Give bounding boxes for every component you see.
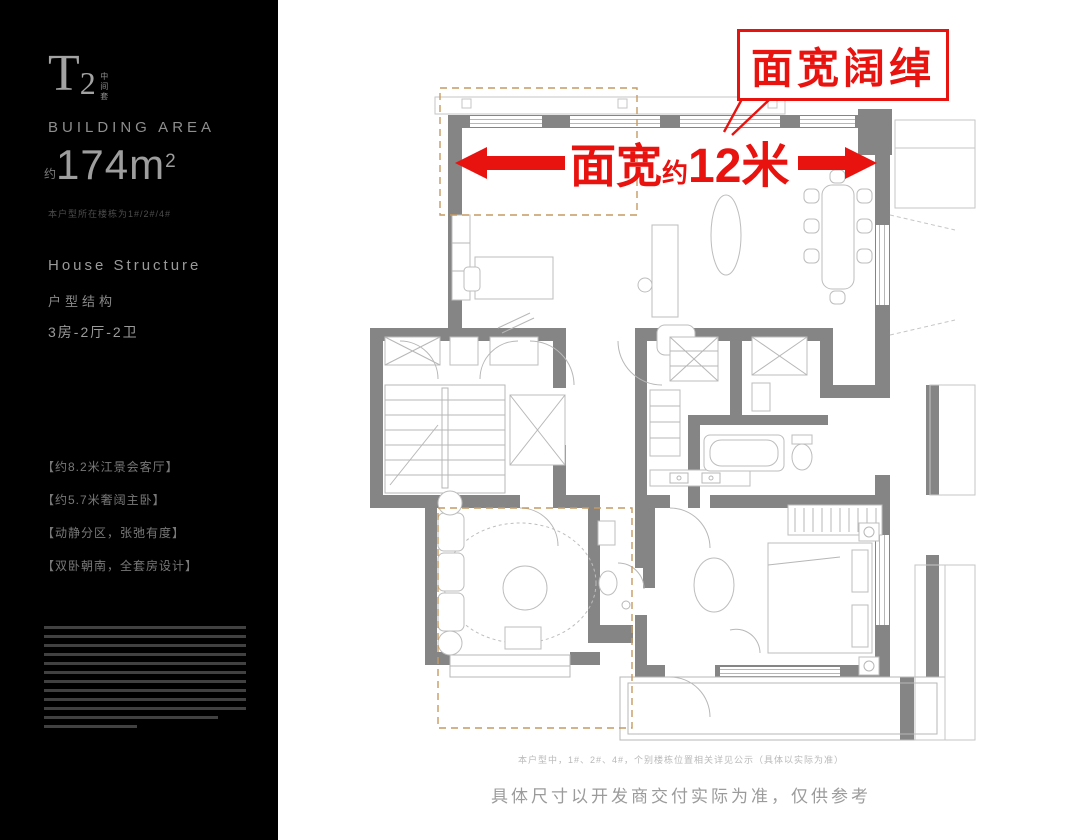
footer-note-small: 本户型中，1#、2#、4#，个别楼栋位置相关详见公示（具体以实际为准） (283, 753, 1079, 766)
footer-note-main: 具体尺寸以开发商交付实际为准，仅供参考 (283, 782, 1079, 807)
fine-print-line (44, 716, 218, 719)
feature-item: 【双卧朝南，全套房设计】 (42, 557, 198, 574)
laundry-room (752, 337, 807, 411)
fine-print-paragraph (44, 626, 246, 734)
unit-code-number: 2 (80, 68, 96, 98)
fine-print-line (44, 653, 246, 656)
fine-print-line (44, 662, 246, 665)
fine-print-line (44, 635, 246, 638)
elevator-core (385, 337, 565, 465)
fine-print-line (44, 707, 246, 710)
study-furniture (452, 215, 553, 333)
house-structure-cn: 户型结构 (48, 291, 116, 310)
unit-code-letter: T (48, 52, 80, 96)
master-bathroom (704, 435, 812, 471)
callout-bubble: 面宽阔绰 (737, 29, 949, 101)
fine-print-line (44, 644, 246, 647)
balcony (620, 677, 945, 740)
fine-print-line (44, 725, 137, 728)
feature-list: 【约8.2米江景会客厅】【约5.7米奢阔主卧】【动静分区，张弛有度】【双卧朝南，… (42, 458, 198, 590)
building-area-label: BUILDING AREA (48, 119, 215, 136)
stairs (385, 385, 505, 493)
building-area-value: 约 174m 2 (44, 141, 176, 189)
unit-tag: 中间套 (99, 72, 110, 102)
feature-item: 【动静分区，张弛有度】 (42, 524, 198, 541)
area-superscript: 2 (165, 151, 176, 173)
fine-print-line (44, 698, 246, 701)
callout-label: 面宽阔绰 (751, 35, 935, 96)
house-structure-en: House Structure (48, 257, 201, 274)
fine-print-line (44, 626, 246, 629)
fine-print-line (44, 680, 246, 683)
second-bedroom (438, 491, 596, 655)
area-number: 174m (56, 141, 165, 189)
dimension-prefix: 面宽 (570, 140, 662, 192)
dimension-value: 12米 (688, 140, 789, 193)
feature-item: 【约5.7米奢阔主卧】 (42, 491, 198, 508)
floor-plan: 面宽约12米 (370, 85, 990, 765)
dimension-annotation: 面宽约12米 (455, 99, 877, 193)
feature-item: 【约8.2米江景会客厅】 (42, 458, 198, 475)
svg-text:面宽约12米: 面宽约12米 (570, 140, 789, 193)
info-panel: T 2 中间套 BUILDING AREA 约 174m 2 本户型所在楼栋为1… (0, 0, 278, 840)
area-prefix: 约 (44, 165, 56, 182)
dimension-about: 约 (662, 158, 688, 188)
parapet-lines (435, 97, 785, 114)
dining-table (804, 170, 872, 304)
house-structure-value: 3房-2厅-2卫 (48, 322, 139, 342)
building-note: 本户型所在楼栋为1#/2#/4# (48, 207, 171, 220)
unit-code: T 2 中间套 (48, 52, 110, 102)
page: T 2 中间套 BUILDING AREA 约 174m 2 本户型所在楼栋为1… (0, 0, 1079, 840)
fine-print-line (44, 671, 246, 674)
footer: 本户型中，1#、2#、4#，个别楼栋位置相关详见公示（具体以实际为准） 具体尺寸… (283, 753, 1079, 807)
fine-print-line (44, 689, 246, 692)
